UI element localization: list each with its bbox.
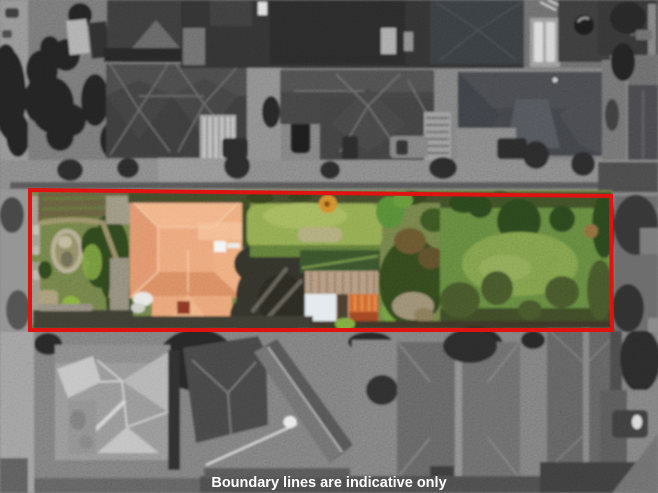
- svg-text:Boundary lines are indicative: Boundary lines are indicative only: [211, 475, 446, 491]
